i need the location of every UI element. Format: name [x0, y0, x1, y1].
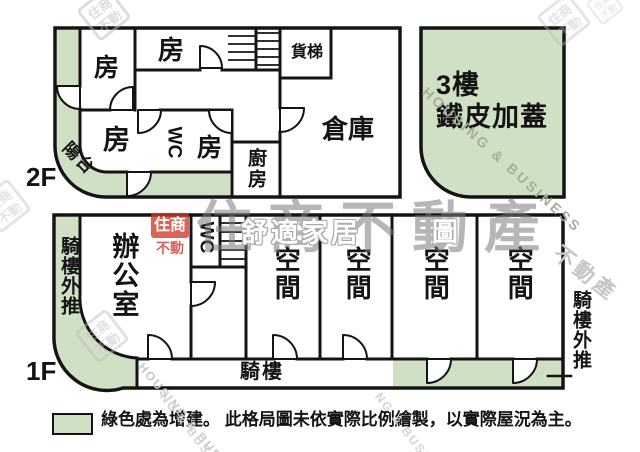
room-label-freight-elevator: 貨梯	[283, 45, 331, 61]
door-space2-1f	[343, 335, 367, 359]
door-office-corridor-1f	[191, 282, 215, 306]
door-space1-1f	[273, 335, 297, 359]
door-bedroom3-2f	[138, 110, 161, 133]
room-label-space-3: 空間	[421, 246, 448, 302]
room-label-bedroom-4: 房	[197, 136, 222, 161]
legend-note: 綠色處為增建。 此格局圖未依實際比例繪製，以實際屋況為主。	[101, 411, 582, 428]
room-label-bedroom-3: 房	[103, 127, 130, 154]
annex-label-line1: 3樓	[436, 72, 480, 99]
door-bedroom4-2f	[209, 110, 232, 133]
stairs-2f	[228, 33, 280, 65]
floor-label-2f: 2F	[26, 164, 56, 190]
room-label-space-1: 空間	[272, 246, 299, 302]
walls-1f	[80, 215, 561, 386]
door-warehouse-2f	[280, 108, 304, 132]
room-label-wc-1f: WC	[197, 216, 216, 260]
door-bedroom1-2f	[110, 87, 133, 110]
door-bedroom2-2f	[200, 46, 222, 68]
room-label-office: 辦公室	[109, 232, 137, 319]
door-office-1f	[148, 335, 172, 359]
room-label-space-2: 空間	[343, 246, 370, 302]
floor-label-1f: 1F	[26, 358, 56, 384]
room-label-arcade: 騎樓	[240, 362, 284, 382]
floorplan-page: 2F 1F 房 房 房 房 WC 廚房 貨梯 倉庫 陽台 3樓 鐵皮加蓋 辦公室…	[0, 0, 640, 452]
room-label-bedroom-2: 房	[158, 37, 184, 63]
room-label-wc-2f: WC	[165, 121, 184, 165]
room-label-warehouse: 倉庫	[308, 116, 388, 142]
room-label-space-4: 空間	[505, 246, 532, 302]
annex-label-line2: 鐵皮加蓋	[436, 104, 548, 131]
label-arcade-ext-right: 騎樓外推	[570, 290, 590, 370]
stairs	[220, 33, 280, 259]
label-arcade-ext-left: 騎樓外推	[58, 236, 78, 316]
room-label-kitchen: 廚房	[245, 148, 265, 190]
stairs-1f	[220, 223, 246, 259]
legend-green-swatch	[52, 413, 93, 435]
room-label-bedroom-1: 房	[94, 56, 119, 81]
